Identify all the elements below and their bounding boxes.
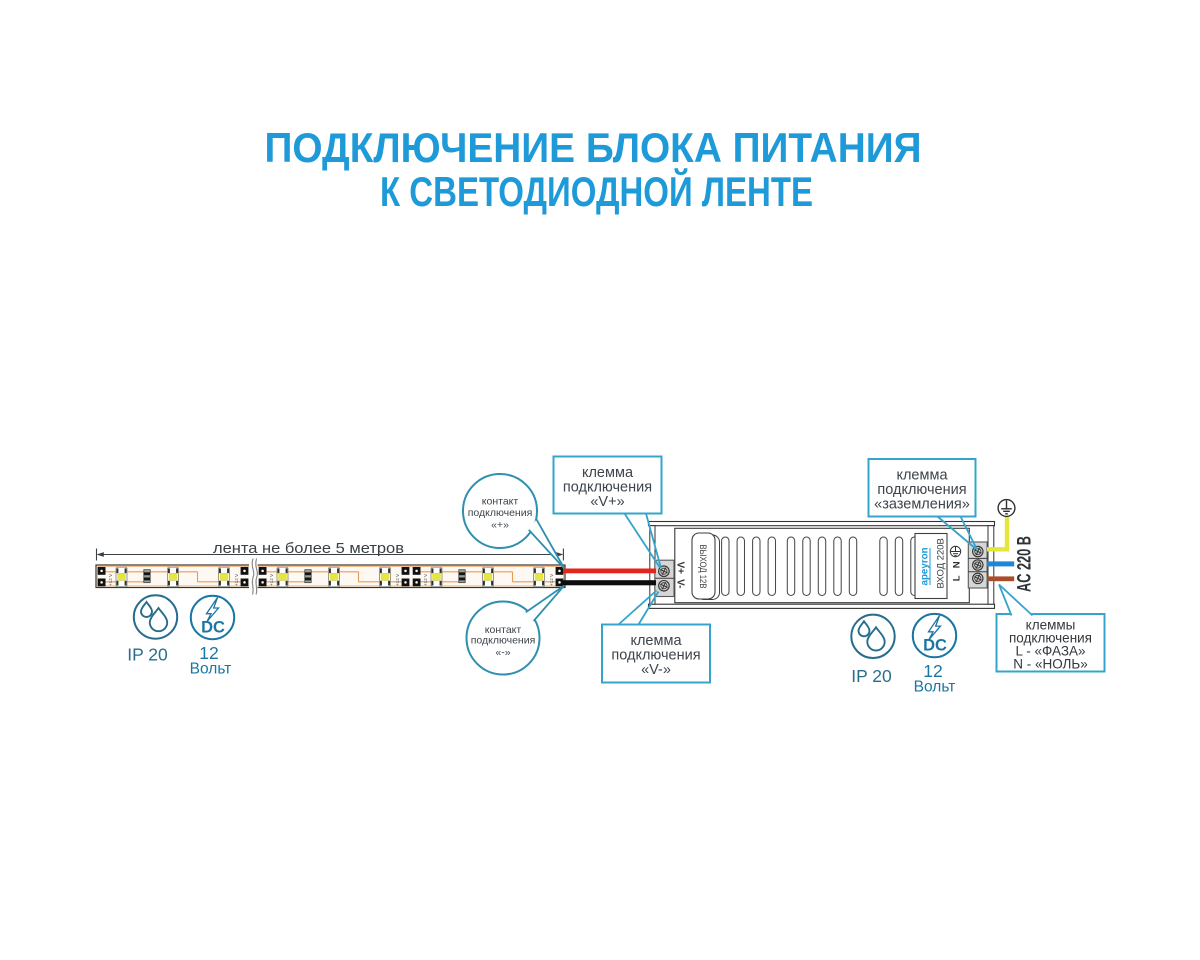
svg-text:К СВЕТОДИОДНОЙ ЛЕНТЕ: К СВЕТОДИОДНОЙ ЛЕНТЕ [380,168,813,215]
svg-text:ВЫХОД 12В: ВЫХОД 12В [697,545,708,589]
svg-text:apeyron: apeyron [920,547,931,585]
svg-text:IP 20: IP 20 [127,645,168,665]
svg-text:V-: V- [675,579,686,588]
svg-text:Вольт: Вольт [914,679,956,696]
svg-text:подключения: подключения [471,635,536,647]
svg-text:V+: V+ [675,562,686,575]
svg-text:контакт: контакт [482,496,519,508]
svg-text:AC 220 В: AC 220 В [1015,536,1036,592]
svg-text:L: L [951,575,962,581]
svg-text:N: N [951,561,962,568]
svg-text:IP 20: IP 20 [851,666,892,686]
svg-text:подключения: подключения [468,507,533,519]
svg-text:Вольт: Вольт [190,661,232,678]
svg-text:«V-»: «V-» [641,662,671,678]
svg-text:«V+»: «V+» [590,494,624,510]
svg-text:ВХОД 220В: ВХОД 220В [936,538,947,588]
svg-text:ПОДКЛЮЧЕНИЕ БЛОКА ПИТАНИЯ: ПОДКЛЮЧЕНИЕ БЛОКА ПИТАНИЯ [265,124,922,171]
svg-text:«заземления»: «заземления» [874,497,970,513]
svg-text:лента не более 5 метров: лента не более 5 метров [213,540,404,557]
svg-text:N - «НОЛЬ»: N - «НОЛЬ» [1013,657,1088,672]
svg-text:«-»: «-» [495,647,510,659]
svg-text:«+»: «+» [491,519,509,531]
